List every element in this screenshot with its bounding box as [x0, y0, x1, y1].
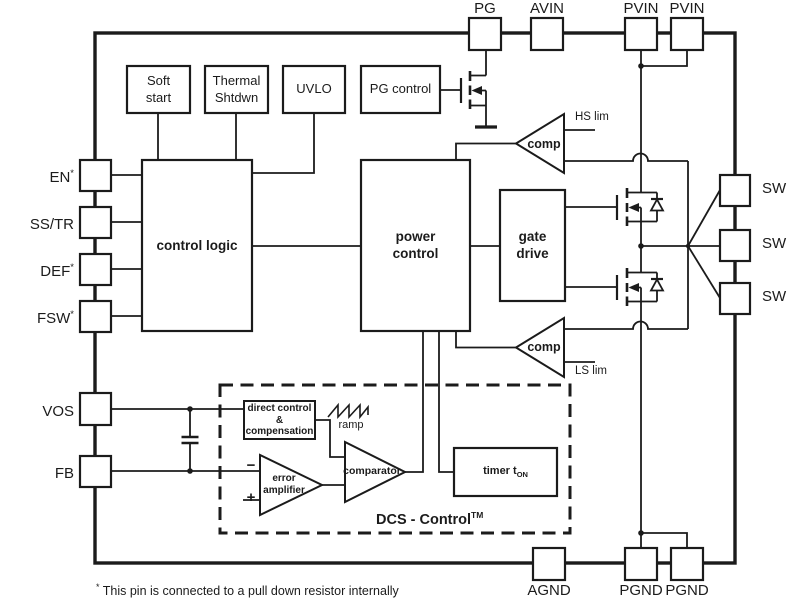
soft-start-label: Softstart	[127, 73, 190, 106]
pin-label-sw-2: SW	[762, 236, 786, 252]
pin-box-sstr	[80, 207, 111, 238]
pin-box-en	[80, 160, 111, 191]
pin-box-sw-3	[720, 283, 750, 314]
pin-box-pvin-2	[671, 18, 703, 50]
pin-box-vos	[80, 393, 111, 425]
pin-box-agnd	[533, 548, 565, 580]
pin-box-pvin-1	[625, 18, 657, 50]
power-control-label: powercontrol	[361, 229, 470, 262]
pin-label-fsw: FSW*	[0, 307, 74, 327]
thermal-shutdown-label: ThermalShtdwn	[205, 73, 268, 106]
pin-label-def: DEF*	[0, 260, 74, 280]
pin-box-def	[80, 254, 111, 285]
ramp-label: ramp	[338, 419, 363, 431]
pin-label-agnd: AGND	[527, 583, 570, 599]
pin-label-pgnd-1: PGND	[619, 583, 662, 599]
pin-box-fsw	[80, 301, 111, 332]
lowside-body-diode	[641, 273, 663, 302]
highside-body-diode	[641, 193, 663, 222]
gate-drive-label: gatedrive	[500, 229, 565, 262]
pg-mosfet	[461, 50, 497, 127]
pin-label-pvin-1: PVIN	[623, 1, 658, 17]
pin-label-avin: AVIN	[530, 1, 564, 17]
pin-box-pg	[469, 18, 501, 50]
hs-comparator-label: comp	[524, 137, 564, 151]
error-amplifier-label: erroramplifier	[258, 473, 310, 496]
capacitor	[182, 409, 199, 471]
uvlo-label: UVLO	[283, 81, 345, 98]
pin-label-sw-3: SW	[762, 289, 786, 305]
highside-mosfet	[617, 188, 663, 226]
pin-box-avin	[531, 18, 563, 50]
pin-box-pgnd-2	[671, 548, 703, 580]
ramp-waveform-icon	[328, 405, 368, 417]
lowside-mosfet	[617, 268, 663, 306]
pin-box-sw-1	[720, 175, 750, 206]
pin-label-pvin-2: PVIN	[669, 1, 704, 17]
pg-control-label: PG control	[361, 81, 440, 98]
timer-label: timer tON	[454, 465, 557, 479]
pin-label-sstr: SS/TR	[0, 213, 74, 233]
pin-box-sw-2	[720, 230, 750, 261]
pin-label-sw-1: SW	[762, 181, 786, 197]
direct-control-label: direct control&compensation	[244, 403, 315, 438]
ls-limit-label: LS lim	[575, 365, 607, 377]
pin-label-en: EN*	[0, 166, 74, 186]
error-amp-plus-sign: +	[244, 489, 258, 506]
footnote: * This pin is connected to a pull down r…	[96, 582, 399, 598]
pin-label-fb: FB	[0, 462, 74, 482]
pin-label-pg: PG	[474, 1, 496, 17]
dcs-control-label: DCS - ControlTM	[376, 510, 483, 528]
pin-box-fb	[80, 456, 111, 487]
hs-limit-label: HS lim	[575, 111, 609, 123]
pin-label-vos: VOS	[0, 400, 74, 420]
function-blocks	[127, 66, 565, 496]
comparator-label: comparator	[343, 465, 401, 477]
pin-label-pgnd-2: PGND	[665, 583, 708, 599]
pin-box-pgnd-1	[625, 548, 657, 580]
block-diagram: PG AVIN PVIN PVIN EN* SS/TR DEF* FSW* VO…	[0, 0, 803, 600]
ls-comparator-label: comp	[524, 340, 564, 354]
control-logic-label: control logic	[142, 238, 252, 255]
error-amp-minus-sign: −	[244, 457, 258, 474]
